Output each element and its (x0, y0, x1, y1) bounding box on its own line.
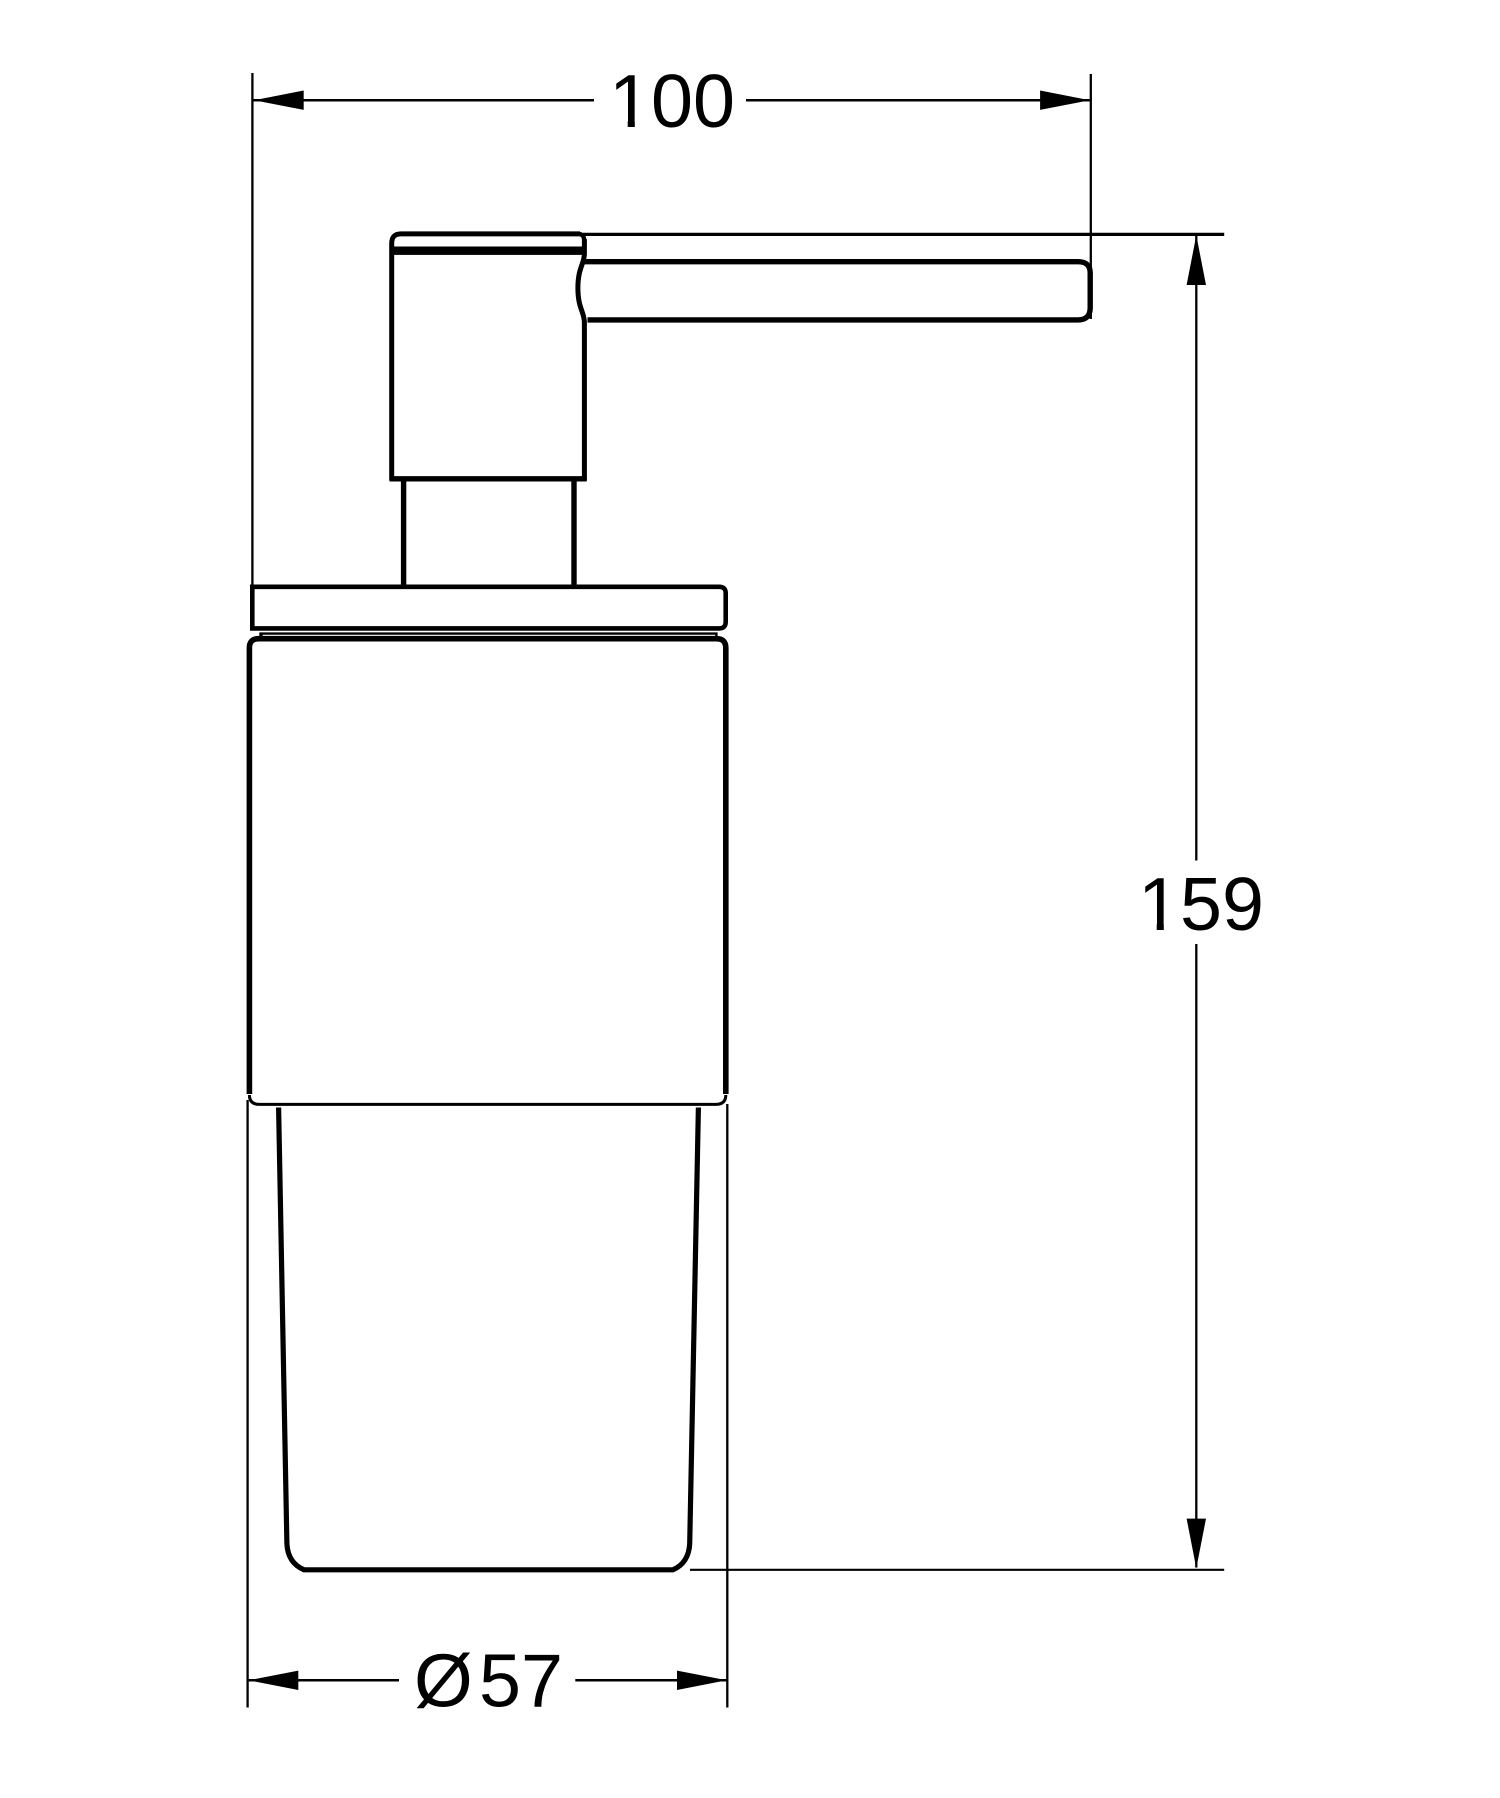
svg-text:57: 57 (479, 1639, 563, 1723)
svg-text:Ø: Ø (414, 1639, 473, 1723)
svg-text:100: 100 (609, 59, 735, 143)
svg-text:159: 159 (1138, 862, 1264, 946)
